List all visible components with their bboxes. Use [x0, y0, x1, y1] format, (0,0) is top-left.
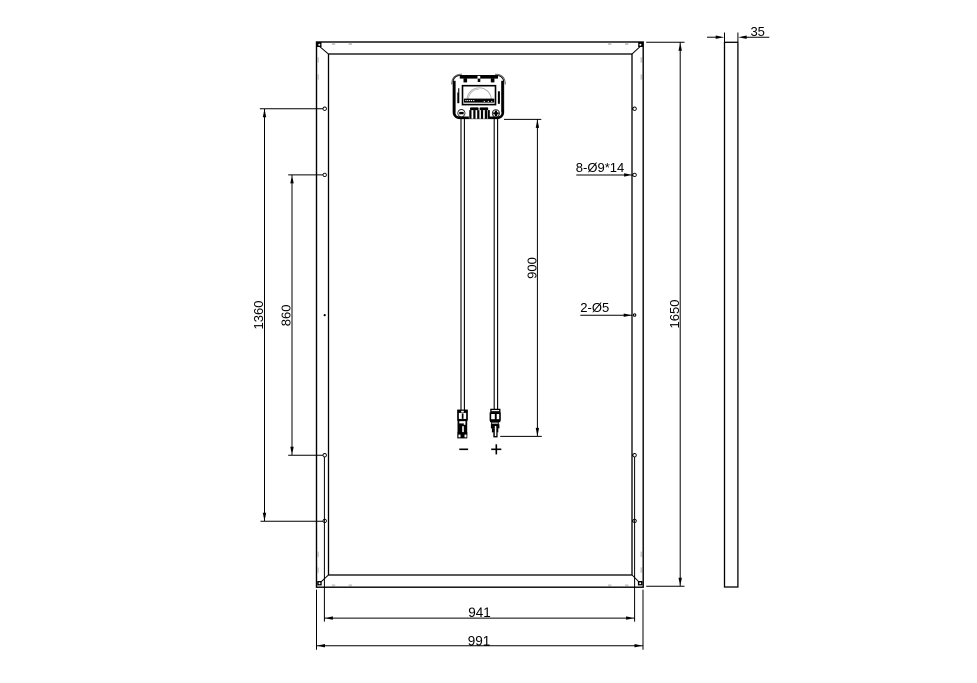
svg-text:941: 941	[468, 605, 491, 620]
svg-text:8-Ø9*14: 8-Ø9*14	[576, 160, 624, 175]
svg-text:860: 860	[278, 305, 293, 327]
svg-text:2-Ø5: 2-Ø5	[580, 300, 609, 315]
svg-text:35: 35	[750, 24, 764, 39]
svg-text:1650: 1650	[667, 300, 682, 329]
svg-text:1360: 1360	[251, 301, 266, 330]
svg-text:991: 991	[468, 633, 491, 648]
svg-text:900: 900	[524, 257, 539, 279]
